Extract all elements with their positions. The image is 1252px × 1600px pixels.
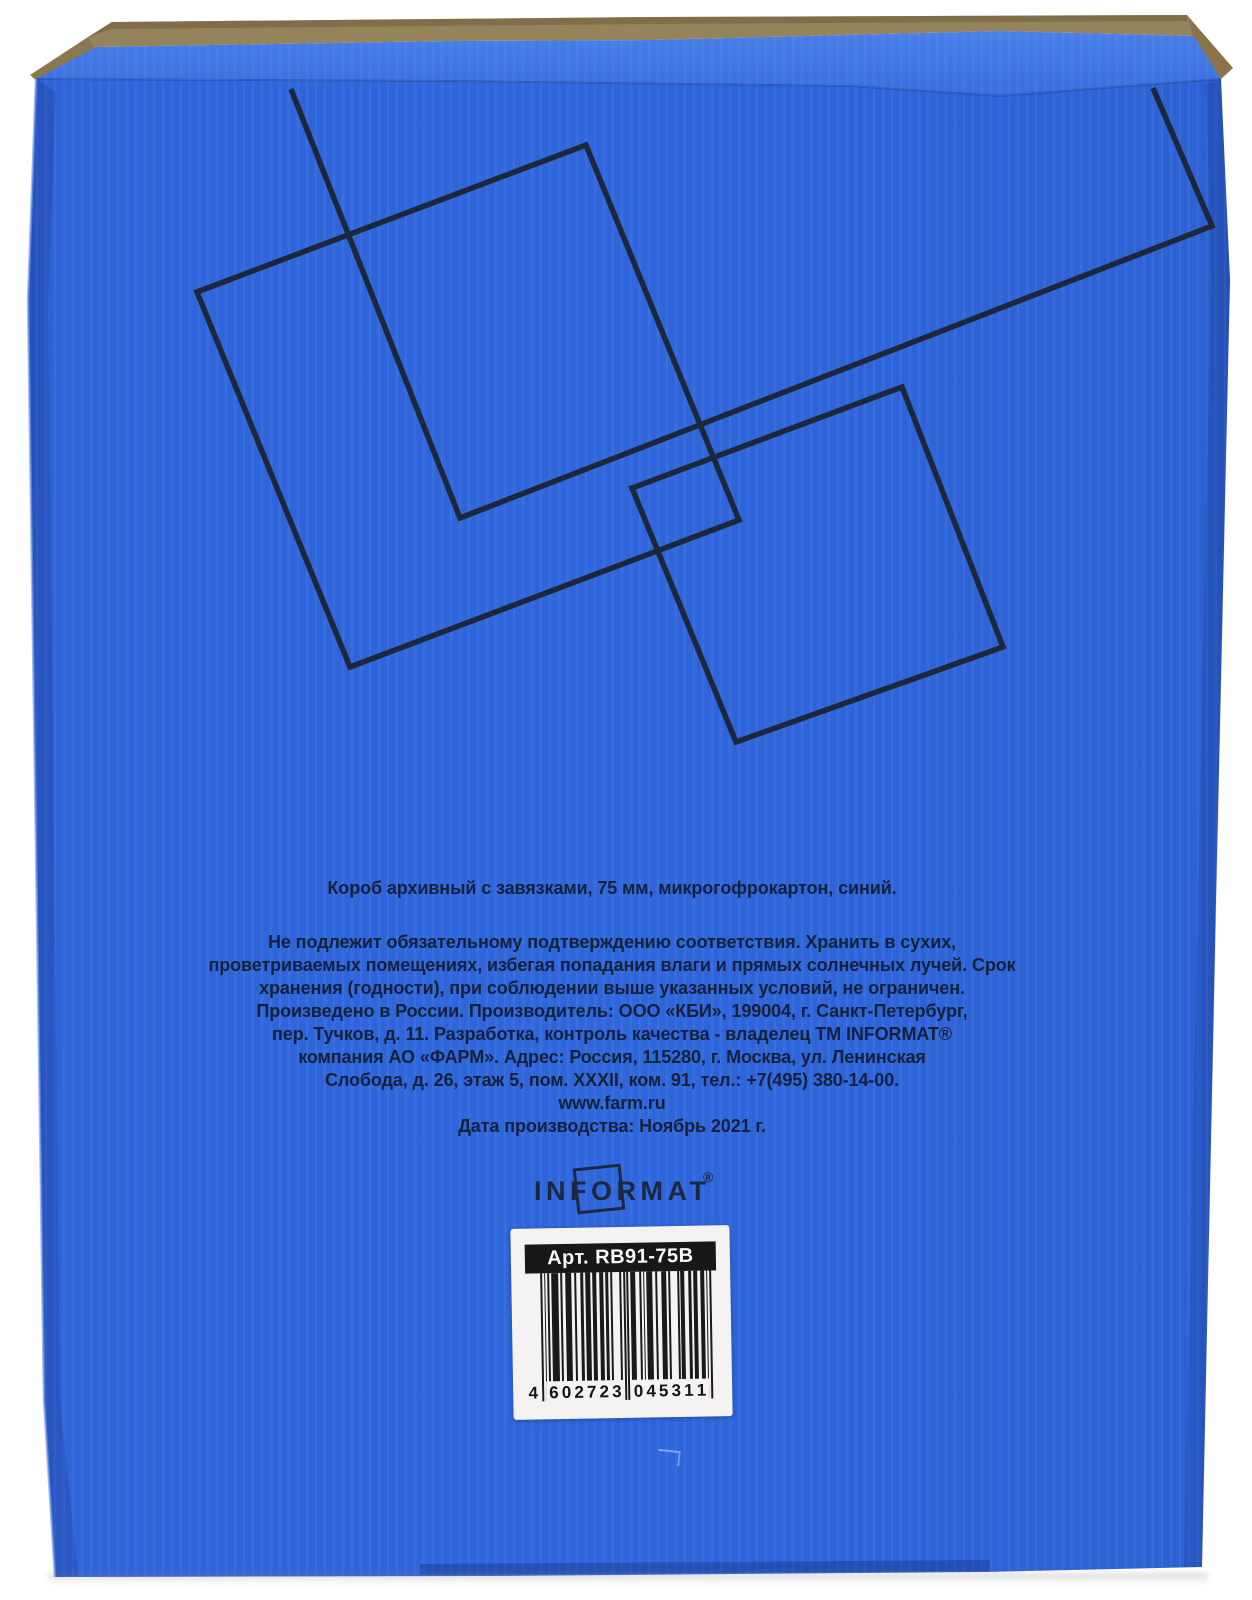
barcode-bar — [592, 1272, 598, 1383]
barcode-bar — [580, 1273, 586, 1384]
info-line: Произведено в России. Производитель: ООО… — [162, 1000, 1062, 1023]
barcode-bar — [655, 1271, 659, 1382]
barcode-digit: 1 — [693, 1380, 709, 1400]
barcode-bar — [693, 1271, 699, 1382]
informat-logo: INFORMAT ® — [534, 1162, 744, 1224]
product-photo-archive-box: Короб архивный с завязками, 75 мм, микро… — [0, 0, 1252, 1600]
barcode-bar — [560, 1273, 564, 1384]
barcode-bar — [574, 1273, 578, 1384]
brand-name: INFORMAT — [534, 1176, 710, 1207]
barcode-bar — [709, 1270, 713, 1398]
info-line: пер. Тучков, д. 11. Разработка, контроль… — [162, 1023, 1062, 1046]
barcode-bar — [646, 1271, 653, 1382]
barcode-bar — [700, 1271, 706, 1382]
barcode-bar — [565, 1273, 572, 1384]
barcode-sticker: Арт. RB91-75B 4602723045311 — [510, 1225, 732, 1420]
barcode-bar — [661, 1271, 668, 1382]
info-line: Не подлежит обязательному подтверждению … — [162, 931, 1062, 954]
info-line: Слобода, д. 26, этаж 5, пом. XXXII, ком.… — [162, 1069, 1062, 1092]
info-line: компания АО «ФАРМ». Адрес: Россия, 11528… — [162, 1046, 1062, 1069]
barcode-bar — [610, 1272, 614, 1383]
info-line: хранения (годности), при соблюдении выше… — [162, 977, 1062, 1000]
box-floor-shadow — [48, 1573, 1208, 1584]
registered-trademark-icon: ® — [703, 1169, 713, 1185]
barcode-bar — [585, 1273, 592, 1384]
product-title: Короб архивный с завязками, 75 мм, микро… — [162, 877, 1062, 900]
barcode-digit: 3 — [609, 1382, 625, 1402]
barcode-bar — [600, 1272, 606, 1383]
surface-scuff-mark — [657, 1449, 680, 1466]
barcode-bar — [551, 1273, 560, 1384]
website-line: www.farm.ru — [162, 1092, 1062, 1115]
info-line: проветриваемых помещениях, избегая попад… — [162, 954, 1062, 977]
production-date-line: Дата производства: Ноябрь 2021 г. — [162, 1115, 1062, 1138]
barcode-bar — [668, 1271, 672, 1382]
printed-text-block: Короб архивный с завязками, 75 мм, микро… — [162, 877, 1062, 1138]
ean13-barcode: 4602723045311 — [511, 1270, 732, 1414]
barcode-bar — [681, 1271, 687, 1382]
barcode-digit: 4 — [525, 1383, 541, 1403]
barcode-bar — [688, 1271, 694, 1382]
barcode-bar — [630, 1272, 637, 1383]
article-number-badge: Арт. RB91-75B — [525, 1241, 716, 1273]
